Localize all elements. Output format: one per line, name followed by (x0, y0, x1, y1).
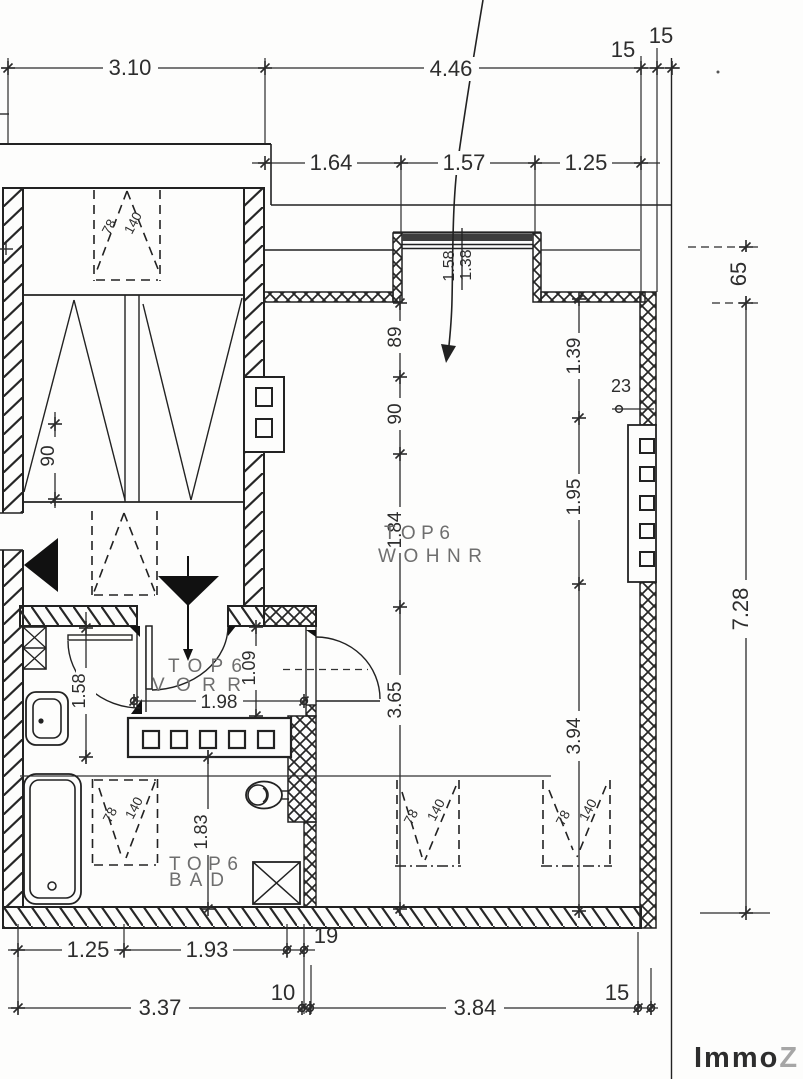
svg-text:1.83: 1.83 (191, 814, 211, 849)
svg-text:1.64: 1.64 (310, 150, 353, 175)
svg-text:90: 90 (38, 445, 59, 466)
svg-text:BAD: BAD (169, 870, 226, 891)
svg-text:4.46: 4.46 (430, 56, 473, 81)
svg-text:15: 15 (649, 23, 673, 48)
svg-text:7.28: 7.28 (728, 588, 753, 631)
svg-text:3.37: 3.37 (139, 995, 182, 1020)
svg-text:WOHNR: WOHNR (378, 546, 484, 567)
svg-text:1.25: 1.25 (67, 937, 110, 962)
svg-text:15: 15 (611, 37, 635, 62)
svg-text:3.94: 3.94 (564, 717, 585, 754)
svg-text:90: 90 (385, 403, 406, 424)
svg-text:1.39: 1.39 (564, 338, 585, 375)
svg-text:1.95: 1.95 (564, 479, 585, 516)
svg-text:1.93: 1.93 (186, 937, 229, 962)
svg-text:1.57: 1.57 (443, 150, 486, 175)
svg-text:23: 23 (611, 376, 631, 396)
svg-text:ImmoZ: ImmoZ (694, 1042, 799, 1074)
svg-text:89: 89 (385, 326, 406, 347)
svg-text:1.25: 1.25 (565, 150, 608, 175)
svg-text:19: 19 (314, 923, 338, 948)
svg-text:10: 10 (271, 980, 295, 1005)
svg-text:3.10: 3.10 (109, 55, 152, 80)
svg-text:3.65: 3.65 (385, 682, 406, 719)
svg-text:1.38: 1.38 (458, 249, 475, 280)
svg-text:1.58: 1.58 (441, 250, 458, 281)
svg-text:3.84: 3.84 (454, 995, 497, 1020)
svg-text:1.58: 1.58 (69, 673, 89, 708)
svg-text:65: 65 (726, 262, 751, 286)
svg-text:15: 15 (605, 980, 629, 1005)
